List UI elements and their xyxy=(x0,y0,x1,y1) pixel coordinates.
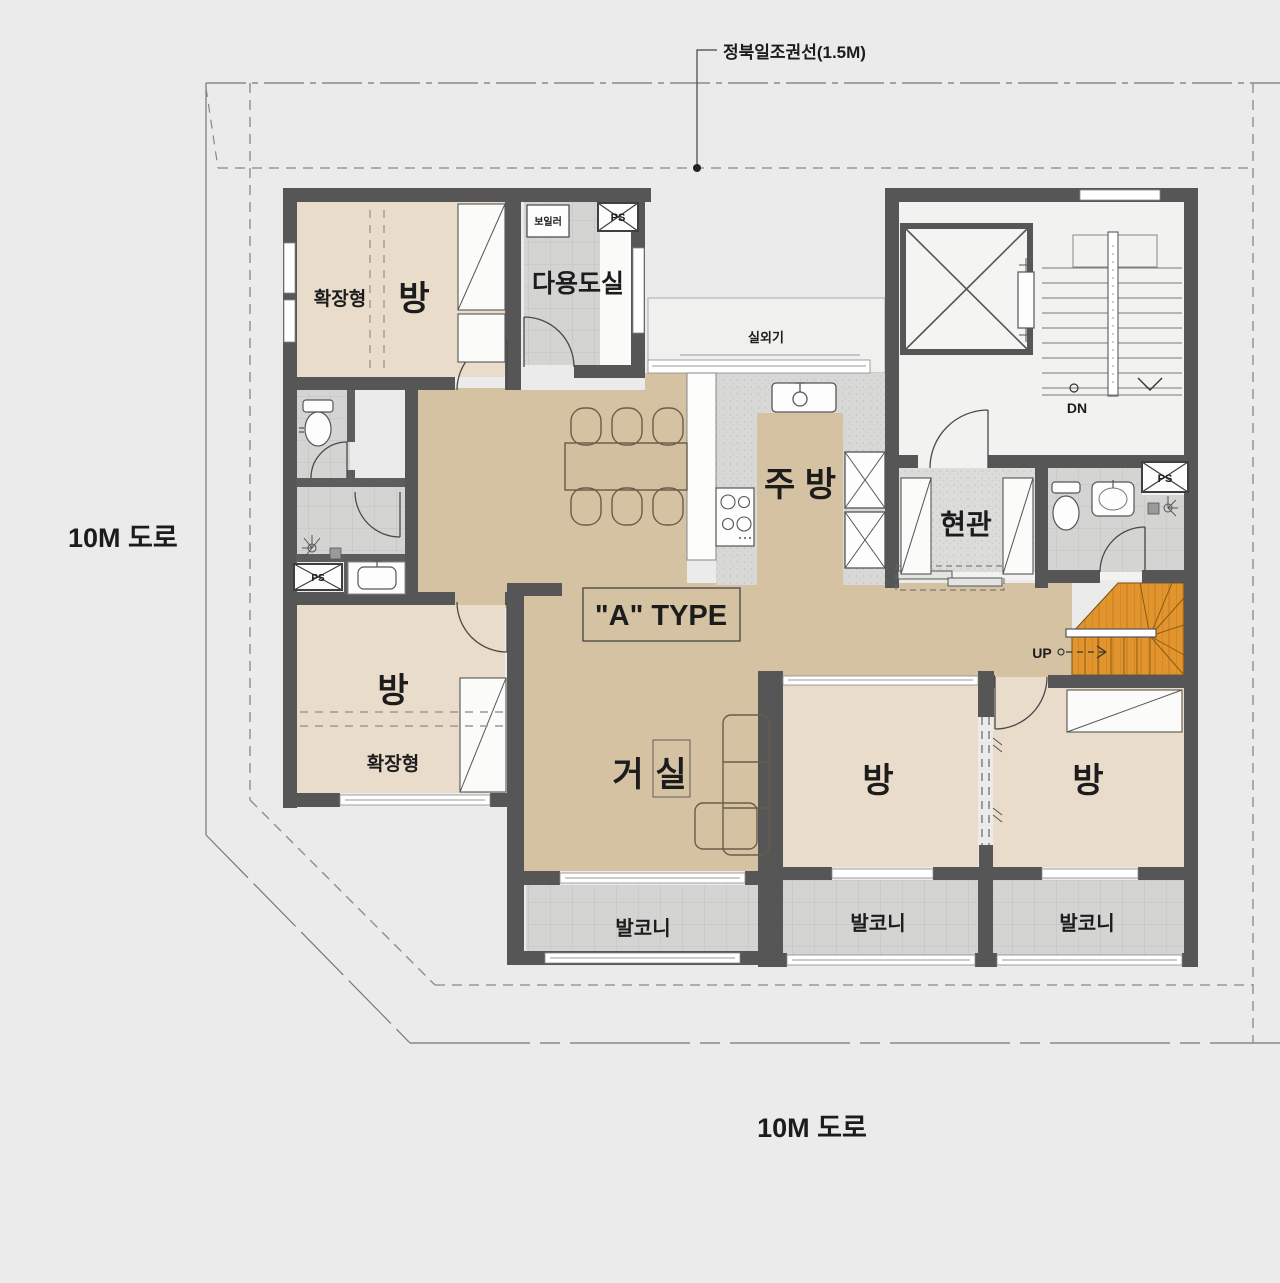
closet-bedroom-top-left xyxy=(458,204,505,362)
svg-text:실: 실 xyxy=(655,756,686,794)
balcony-2-label: 발코니 xyxy=(850,912,905,935)
sink-left xyxy=(348,561,405,594)
up-label: UP xyxy=(1032,645,1051,661)
dn-label: DN xyxy=(1067,400,1087,416)
svg-text:PS: PS xyxy=(311,573,325,584)
kitchen-cooktop xyxy=(716,488,754,546)
unit-type-label: "A" TYPE xyxy=(595,600,727,632)
road-left-label: 10M 도로 xyxy=(68,523,178,553)
utility-label: 다용도실 xyxy=(532,270,624,298)
road-bottom-label: 10M 도로 xyxy=(757,1113,867,1143)
bedroom-bottom-1-label: 방 xyxy=(862,762,893,800)
bedroom-mid-left-tag: 확장형 xyxy=(367,752,419,775)
floor-plan-svg: 정북일조권선(1.5M) 10M 도로 10M 도로 xyxy=(0,0,1280,1278)
bedroom-top-left-tag: 확장형 xyxy=(314,287,366,310)
kitchen-sink xyxy=(772,383,836,412)
ps-shaft-top: PS xyxy=(598,203,638,231)
svg-text:거: 거 xyxy=(612,756,643,794)
boiler-box: 보일러 xyxy=(527,205,569,237)
bedroom-top-left-label: 방 xyxy=(398,280,429,318)
svg-text:보일러: 보일러 xyxy=(534,215,562,228)
floor-plan-page: 정북일조권선(1.5M) 10M 도로 10M 도로 xyxy=(0,0,1280,1278)
entry-label: 현관 xyxy=(940,509,992,540)
balcony-1-label: 발코니 xyxy=(615,917,670,940)
closet-bedroom-mid-left xyxy=(460,678,506,792)
ps-shaft-left: PS xyxy=(294,564,342,590)
kitchen-label: 주 방 xyxy=(764,466,836,504)
shower-room-floor xyxy=(296,487,405,562)
bedroom-mid-left-label: 방 xyxy=(377,672,408,710)
closet-bedroom-bottom-2 xyxy=(1067,690,1182,732)
bedroom-bottom-2-label: 방 xyxy=(1072,762,1103,800)
svg-text:PS: PS xyxy=(611,212,626,224)
dining-table xyxy=(565,443,687,490)
svg-text:PS: PS xyxy=(1158,473,1173,485)
sun-line-label: 정북일조권선(1.5M) xyxy=(723,43,866,62)
living-room-floor xyxy=(524,595,772,871)
elevator-door-icon xyxy=(1018,272,1034,328)
outdoor-unit-label: 실외기 xyxy=(748,330,784,345)
balcony-3-label: 발코니 xyxy=(1059,912,1114,935)
ps-shaft-right: PS xyxy=(1142,462,1188,492)
